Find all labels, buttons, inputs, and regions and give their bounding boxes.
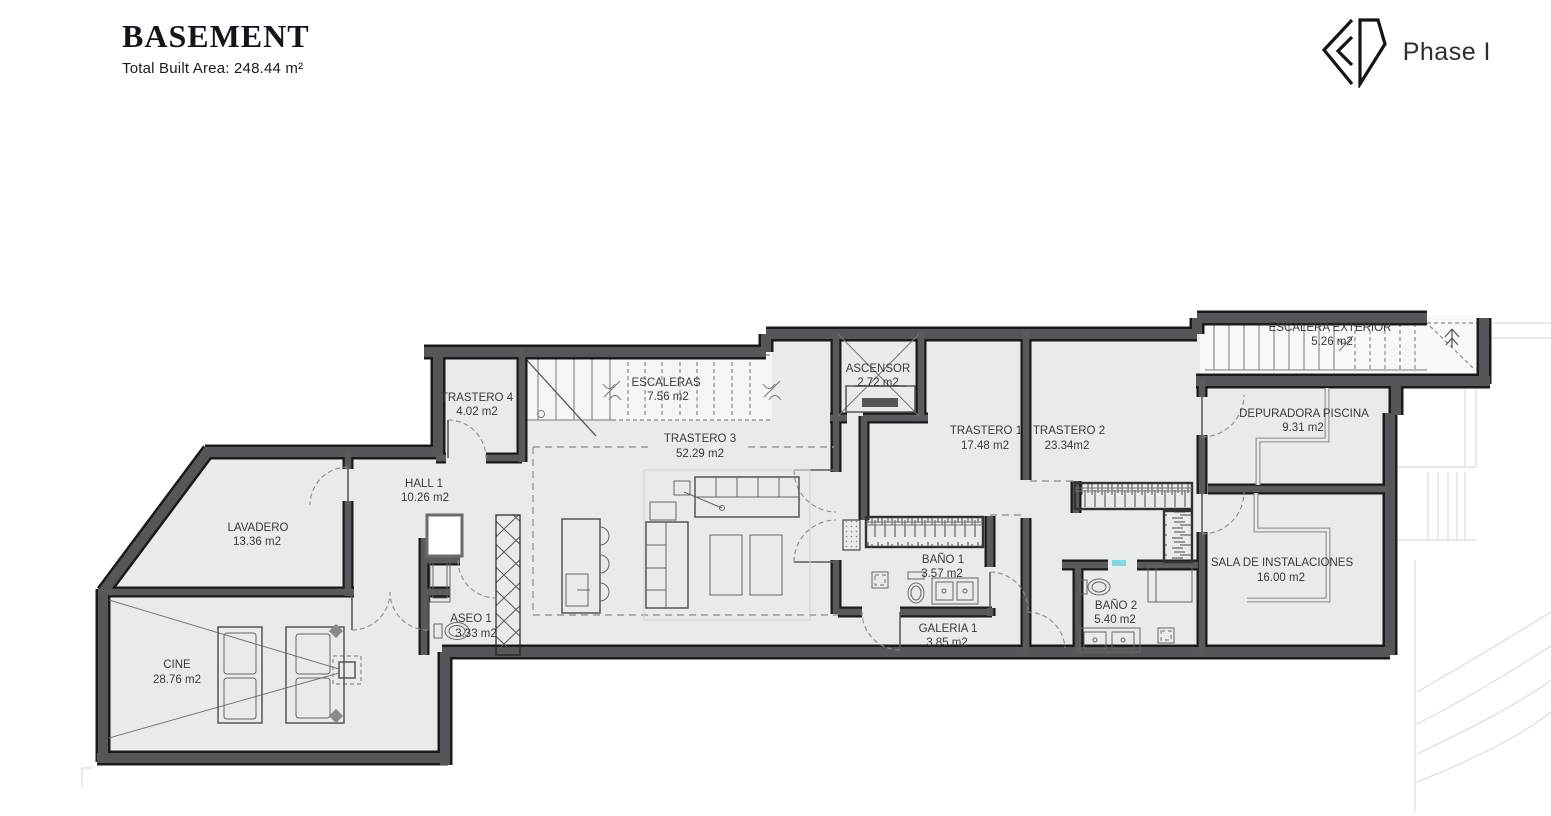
duct-column xyxy=(843,520,860,550)
svg-text:5.26 m2: 5.26 m2 xyxy=(1311,336,1353,348)
svg-text:17.48 m2: 17.48 m2 xyxy=(961,440,1009,452)
svg-text:HALL 1: HALL 1 xyxy=(405,478,443,490)
sliding-door-marker xyxy=(1112,560,1126,566)
svg-text:2.72 m2: 2.72 m2 xyxy=(857,377,899,389)
svg-text:TRASTERO 3: TRASTERO 3 xyxy=(664,433,736,445)
svg-text:ESCALERA EXTERIOR: ESCALERA EXTERIOR xyxy=(1269,322,1392,334)
floor-plan-page: BASEMENT Total Built Area: 248.44 m² Pha… xyxy=(0,0,1551,816)
svg-text:9.31 m2: 9.31 m2 xyxy=(1282,422,1324,434)
svg-text:SALA DE INSTALACIONES: SALA DE INSTALACIONES xyxy=(1211,557,1354,569)
svg-text:13.36 m2: 13.36 m2 xyxy=(233,536,281,548)
svg-text:BAÑO 1: BAÑO 1 xyxy=(922,553,964,566)
svg-text:GALERIA 1: GALERIA 1 xyxy=(919,623,978,635)
svg-text:52.29 m2: 52.29 m2 xyxy=(676,448,724,460)
floor-plan-drawing: TRASTERO 44.02 m2 ESCALERAS7.56 m2 ASCEN… xyxy=(0,0,1551,816)
svg-text:ESCALERAS: ESCALERAS xyxy=(631,377,700,389)
svg-text:23.34m2: 23.34m2 xyxy=(1045,440,1090,452)
svg-text:7.56 m2: 7.56 m2 xyxy=(647,391,689,403)
svg-text:LAVADERO: LAVADERO xyxy=(228,522,289,534)
svg-text:TRASTERO 2: TRASTERO 2 xyxy=(1033,425,1105,437)
svg-text:BAÑO 2: BAÑO 2 xyxy=(1095,599,1137,612)
contour-lines xyxy=(1417,612,1551,782)
shaft-hatch-strip xyxy=(496,515,520,655)
closet-box xyxy=(427,515,462,556)
svg-text:TRASTERO 1: TRASTERO 1 xyxy=(950,425,1022,437)
svg-text:3.33 m2: 3.33 m2 xyxy=(455,628,497,640)
svg-text:5.40 m2: 5.40 m2 xyxy=(1094,614,1136,626)
svg-text:ASEO 1: ASEO 1 xyxy=(450,613,492,625)
svg-text:3.85 m2: 3.85 m2 xyxy=(926,637,968,649)
svg-text:TRASTERO 4: TRASTERO 4 xyxy=(441,392,514,404)
svg-text:16.00 m2: 16.00 m2 xyxy=(1257,572,1305,584)
svg-text:DEPURADORA PISCINA: DEPURADORA PISCINA xyxy=(1239,408,1369,420)
svg-text:28.76 m2: 28.76 m2 xyxy=(153,674,201,686)
svg-text:10.26 m2: 10.26 m2 xyxy=(401,492,449,504)
svg-text:3.57 m2: 3.57 m2 xyxy=(921,568,963,580)
svg-text:CINE: CINE xyxy=(163,659,191,671)
svg-text:ASCENSOR: ASCENSOR xyxy=(846,363,911,375)
svg-text:4.02 m2: 4.02 m2 xyxy=(456,406,498,418)
